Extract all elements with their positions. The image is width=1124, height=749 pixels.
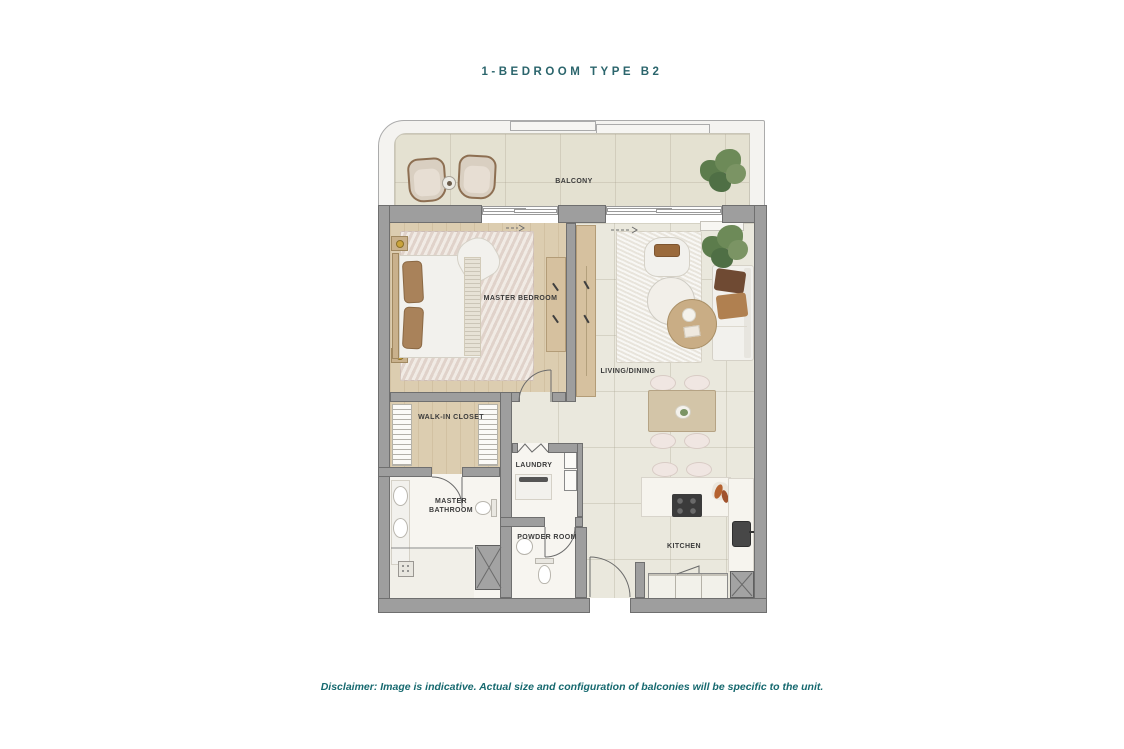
wall-segment	[754, 205, 767, 612]
kitchen-counter	[728, 478, 754, 572]
living-plant	[702, 225, 748, 271]
shower-drain	[398, 561, 414, 577]
dining-chair	[650, 433, 676, 449]
wall-segment	[552, 392, 566, 402]
wall-segment	[500, 517, 545, 527]
plant-leaf	[728, 240, 748, 260]
service-shaft	[475, 545, 503, 590]
wall-segment	[558, 205, 606, 223]
washing-machine	[515, 474, 552, 500]
wall-segment	[635, 562, 645, 598]
wall-segment	[378, 205, 390, 612]
bedroom-wardrobe	[546, 257, 566, 352]
kitchen-sink	[732, 521, 751, 547]
kitchen-cabinets	[648, 573, 728, 600]
kitchen-island	[641, 477, 731, 517]
laundry-shelf-box	[564, 470, 577, 491]
closet-hanging-rail	[392, 404, 412, 466]
bed-pillow	[402, 261, 424, 304]
floor-plan: BALCONY MASTER BEDROOM LIVING/DINING WAL…	[378, 117, 768, 614]
floor-plan-page: 1-BEDROOM TYPE B2	[0, 0, 1124, 749]
dining-chair	[684, 375, 710, 391]
toilet-tank	[491, 499, 497, 517]
balcony-chair	[457, 154, 497, 200]
washer-control-panel	[519, 477, 548, 482]
nightstand	[391, 236, 408, 251]
wall-segment	[378, 205, 482, 223]
plant-leaf	[726, 164, 746, 184]
sofa-cushion-seam	[715, 326, 747, 327]
wall-segment	[462, 467, 500, 477]
room-label-laundry: LAUNDRY	[506, 461, 562, 470]
table-tray	[682, 308, 696, 322]
room-label-master-bedroom: MASTER BEDROOM	[473, 294, 568, 303]
wall-segment	[378, 598, 590, 613]
page-title: 1-BEDROOM TYPE B2	[20, 66, 1124, 78]
wall-segment	[566, 223, 576, 402]
dining-chair	[684, 433, 710, 449]
room-label-kitchen: KITCHEN	[654, 542, 714, 551]
room-label-master-bathroom: MASTER BATHROOM	[416, 497, 486, 516]
sofa-pillow	[716, 292, 749, 319]
wall-segment	[630, 598, 767, 613]
service-shaft	[730, 571, 754, 598]
wall-segment	[577, 443, 583, 517]
coffee-table-wood	[667, 299, 717, 349]
balcony-side-table	[442, 176, 456, 190]
room-label-walk-in-closet: WALK-IN CLOSET	[416, 413, 486, 422]
bed-blanket	[464, 257, 481, 356]
room-label-living-dining: LIVING/DINING	[583, 367, 673, 376]
bed-headboard	[392, 253, 399, 359]
sofa	[712, 265, 754, 361]
toilet-tank	[535, 558, 554, 564]
wardrobe-handle	[552, 315, 559, 324]
bathroom-sink	[393, 486, 408, 506]
disclaimer-text: Disclaimer: Image is indicative. Actual …	[20, 681, 1124, 693]
balcony-area	[394, 133, 750, 212]
armchair-pillow	[654, 244, 680, 257]
building-edge-step	[510, 121, 596, 131]
wall-segment	[512, 443, 518, 453]
wall-segment	[548, 443, 578, 453]
centerpiece-greens	[680, 409, 688, 416]
table-centerpiece	[675, 405, 691, 419]
room-label-balcony: BALCONY	[534, 177, 614, 186]
living-armchair	[644, 237, 690, 277]
balcony-plant	[700, 149, 748, 201]
table-book	[683, 325, 700, 338]
lamp-icon	[396, 240, 404, 248]
bar-stool	[686, 462, 712, 477]
bar-stool	[652, 462, 678, 477]
wall-segment	[378, 467, 432, 477]
bed-pillow	[402, 307, 424, 350]
toilet	[538, 565, 551, 584]
room-label-powder-room: POWDER ROOM	[517, 533, 577, 542]
wall-segment	[500, 392, 512, 598]
wardrobe-handle	[552, 283, 559, 292]
bathroom-sink	[393, 518, 408, 538]
dining-chair	[650, 375, 676, 391]
sofa-pillow	[714, 268, 747, 294]
balcony-sliding-door	[606, 206, 722, 215]
dining-table	[648, 390, 716, 432]
wall-segment	[575, 517, 583, 527]
balcony-sliding-door	[482, 206, 558, 215]
cooktop	[672, 494, 702, 517]
